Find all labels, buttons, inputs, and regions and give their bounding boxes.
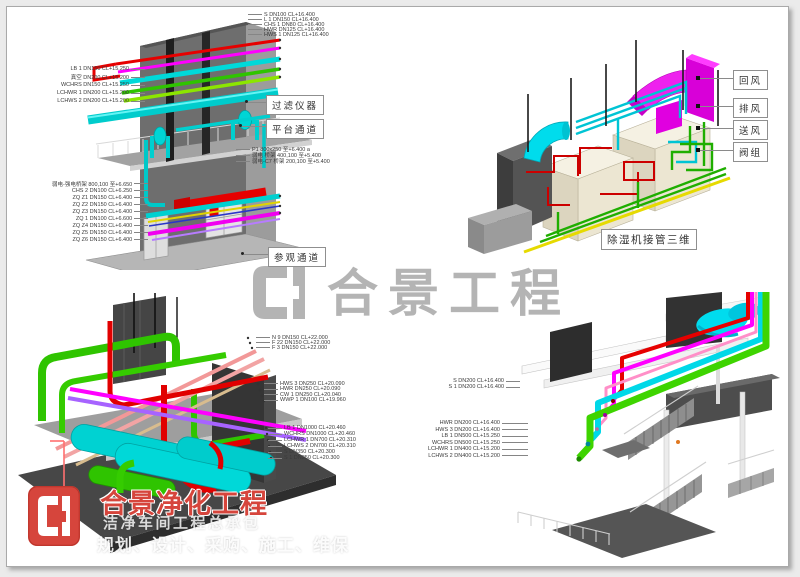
pipe-label: S 1 DN250 CL+20.300 (268, 455, 340, 461)
company-logo-icon (28, 486, 80, 546)
pipe-label: ZQ Z2 DN150 CL+6.400 (72, 201, 148, 208)
valve-marker (676, 440, 680, 444)
label-stack-mid-right: P1 800x250 至+6.400 a弱电 桥架 400,100 至+5.40… (236, 146, 330, 164)
drawing-sheet-page: { "watermark": { "logo": "heju-monogram"… (0, 0, 800, 577)
label-stack-bl-top: N 9 DN150 CL+22.000F 22 DN150 CL+22.000F… (256, 335, 330, 350)
callout-supply-air: 送风 (733, 120, 768, 140)
pipe-label: 弱电-强电桥架 800,100 至+6.650 (52, 180, 148, 187)
company-subtitle: 洁净车间工程总承包 (103, 512, 261, 533)
pipe-label: F 3 DN150 CL+22.000 (256, 345, 327, 350)
callout-exhaust-air: 排风 (733, 98, 768, 118)
callout-platform-walkway: 平台通道 (266, 119, 324, 139)
pipe-label: WCHRS DN150 CL+15.250 (61, 81, 145, 89)
pipe-label: LCHWS 2 DN400 CL+15.200 (428, 453, 528, 460)
callout-filter-instrument: 过滤仪器 (266, 95, 324, 115)
callout-return-air: 回风 (733, 70, 768, 90)
label-stack-br-bottom: HWR DN200 CL+16.400HWS 3 DN200 CL+16.400… (432, 420, 528, 459)
pipe-label: ZQ Z4 DN150 CL+6.400 (72, 222, 148, 229)
magenta-duct-assembly (627, 54, 720, 134)
pipe-label: ZQ 1 DN100 CL+6.600 (76, 215, 148, 222)
pipe-label: ZQ Z5 DN150 CL+6.400 (72, 229, 148, 236)
view-stair-riser-iso (516, 292, 794, 570)
company-services: 规划、设计、采购、施工、维保 (97, 531, 349, 556)
label-stack-left-upper: LB 1 DN150 CL+15.250真空 DN200 CL+15.200WC… (57, 65, 145, 105)
pipe-label: LB 1 DN150 CL+15.250 (70, 65, 145, 73)
pipe-label: ZQ Z3 DN150 CL+6.400 (72, 208, 148, 215)
pipe-label: WWP 1 DN100 CL+19.960 (264, 398, 346, 404)
pipe-label: CHS 2 DN100 CL+6.250 (72, 187, 148, 194)
pipe-label: ZQ Z6 DN150 CL+6.400 (72, 236, 148, 243)
pipe-label: HWS 1 DN125 CL+16.400 (248, 32, 329, 37)
pipe-label: 弱电-C7 桥架 200,100 至+5.400 (236, 158, 330, 164)
label-stack-left-lower: 弱电-强电桥架 800,100 至+6.650CHS 2 DN100 CL+6.… (52, 180, 148, 243)
pipe-label: LCHWR 1 DN200 CL+15.200 (57, 89, 145, 97)
label-stack-top-right: S DN100 CL+16.400L 1 DN150 CL+16.400CHS … (248, 12, 329, 37)
label-stack-br-top: S DN200 CL+16.400S 1 DN200 CL+16.400 (440, 378, 520, 390)
pipe-label: LCHWS 2 DN200 CL+15.200 (57, 97, 145, 105)
label-stack-bl-bottom: LB 1 DN1000 CL+20.460WCHRS DN1000 CL+20.… (268, 425, 356, 461)
label-stack-bl-mid: HWS 3 DN250 CL+20.090HWR DN250 CL+20.090… (264, 381, 346, 403)
pipe-label: 真空 DN200 CL+15.200 (71, 73, 145, 81)
dark-panel-left (550, 322, 592, 382)
view-dehumidifier-piping-iso (428, 22, 748, 257)
pipe-label: ZQ Z1 DN150 CL+6.400 (72, 194, 148, 201)
pipe-label: S 1 DN200 CL+16.400 (449, 384, 521, 390)
callout-visitor-walkway: 参观通道 (268, 247, 326, 267)
caption-dehumidifier-3d: 除湿机接管三维 (601, 229, 697, 250)
callout-valve-group: 阀组 (733, 142, 768, 162)
